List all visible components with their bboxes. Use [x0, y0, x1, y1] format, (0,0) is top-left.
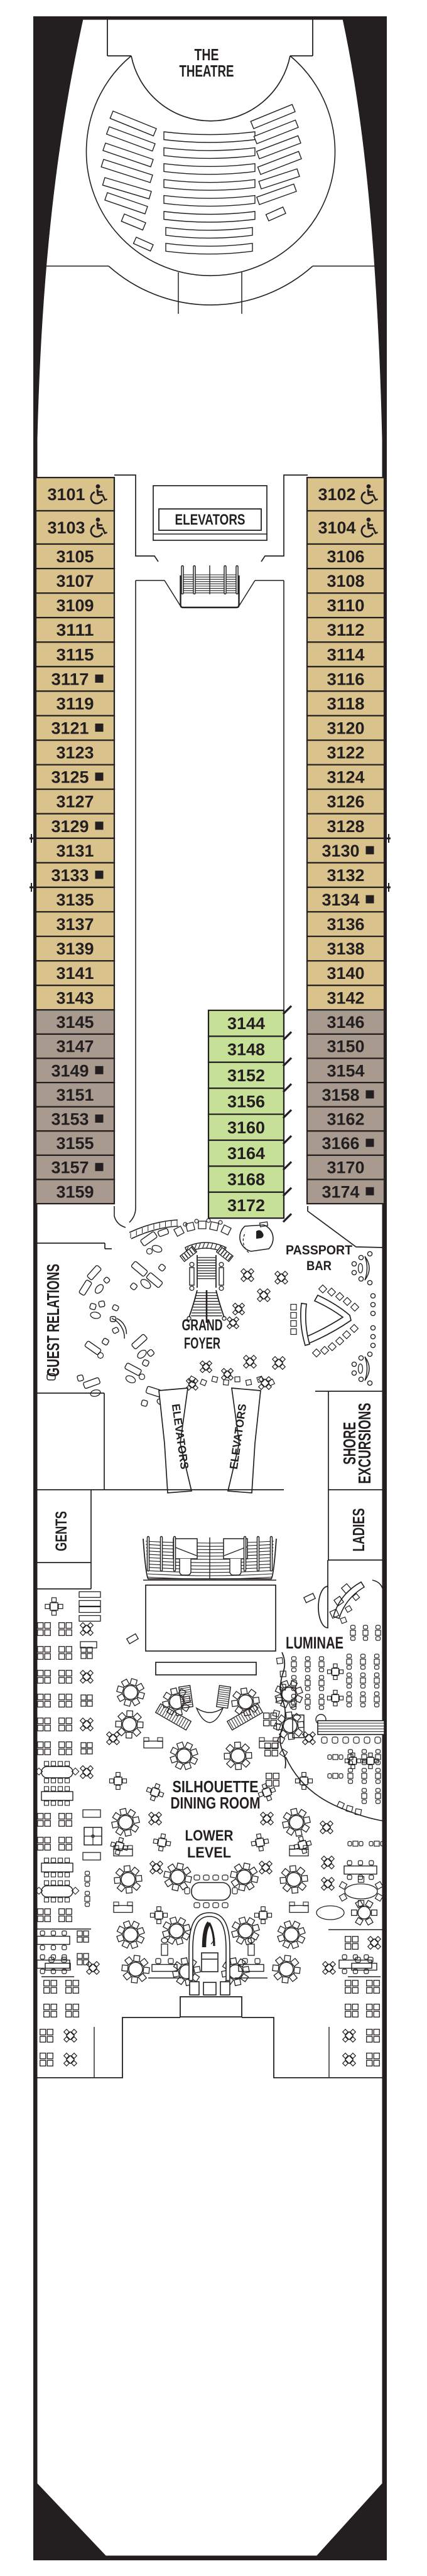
svg-text:3121: 3121 — [51, 719, 89, 738]
svg-text:EXCURSIONS: EXCURSIONS — [355, 1403, 374, 1484]
svg-text:3142: 3142 — [327, 988, 365, 1007]
svg-text:3146: 3146 — [327, 1013, 365, 1032]
svg-text:3118: 3118 — [327, 694, 365, 713]
svg-text:3168: 3168 — [227, 1170, 265, 1189]
svg-text:3124: 3124 — [327, 768, 365, 787]
svg-text:LOWER: LOWER — [185, 1827, 234, 1844]
svg-text:LEVEL: LEVEL — [187, 1844, 231, 1861]
svg-text:3107: 3107 — [57, 572, 94, 591]
svg-text:3137: 3137 — [57, 915, 94, 934]
svg-text:3102: 3102 — [318, 485, 356, 504]
svg-text:3135: 3135 — [57, 890, 94, 909]
svg-text:3136: 3136 — [327, 915, 365, 934]
svg-text:3120: 3120 — [327, 719, 365, 738]
svg-text:3162: 3162 — [327, 1110, 365, 1129]
svg-text:3155: 3155 — [57, 1134, 94, 1153]
svg-text:3128: 3128 — [327, 817, 365, 836]
svg-text:GRAND: GRAND — [182, 1317, 223, 1334]
svg-text:3134: 3134 — [322, 890, 360, 909]
svg-text:3149: 3149 — [51, 1061, 89, 1080]
svg-text:PASSPORT: PASSPORT — [286, 1243, 352, 1258]
svg-text:3129: 3129 — [51, 817, 89, 836]
svg-text:3106: 3106 — [327, 547, 365, 566]
svg-text:3112: 3112 — [327, 621, 365, 639]
svg-text:3147: 3147 — [57, 1037, 94, 1056]
svg-text:3109: 3109 — [57, 596, 94, 615]
svg-text:3101: 3101 — [48, 485, 85, 504]
svg-text:3148: 3148 — [227, 1040, 265, 1059]
svg-text:3132: 3132 — [327, 866, 365, 885]
svg-text:3172: 3172 — [227, 1196, 265, 1215]
svg-text:3133: 3133 — [51, 866, 89, 885]
svg-text:3119: 3119 — [57, 694, 94, 713]
svg-text:3140: 3140 — [327, 964, 365, 983]
svg-text:3123: 3123 — [57, 744, 94, 762]
svg-text:3115: 3115 — [57, 645, 94, 664]
svg-text:3130: 3130 — [322, 842, 360, 860]
svg-text:GENTS: GENTS — [53, 1511, 70, 1551]
svg-text:3158: 3158 — [322, 1086, 360, 1104]
svg-text:3108: 3108 — [327, 572, 365, 591]
svg-text:3153: 3153 — [51, 1110, 89, 1129]
svg-text:3141: 3141 — [57, 964, 94, 983]
svg-text:3160: 3160 — [227, 1118, 265, 1137]
svg-text:3145: 3145 — [57, 1013, 94, 1032]
svg-text:DINING ROOM: DINING ROOM — [171, 1793, 261, 1812]
svg-text:3111: 3111 — [57, 621, 94, 639]
svg-text:LUMINAE: LUMINAE — [286, 1633, 343, 1652]
svg-text:3105: 3105 — [57, 547, 94, 566]
svg-text:3144: 3144 — [227, 1014, 265, 1033]
svg-text:THEATRE: THEATRE — [180, 61, 234, 80]
svg-text:3150: 3150 — [327, 1037, 365, 1056]
svg-text:3126: 3126 — [327, 793, 365, 811]
svg-text:3114: 3114 — [327, 645, 365, 664]
svg-text:GUEST RELATIONS: GUEST RELATIONS — [43, 1264, 63, 1377]
svg-text:3154: 3154 — [327, 1061, 365, 1080]
svg-text:FOYER: FOYER — [184, 1335, 220, 1352]
svg-text:3152: 3152 — [227, 1066, 265, 1085]
svg-text:3166: 3166 — [322, 1134, 360, 1153]
svg-text:3156: 3156 — [227, 1092, 265, 1111]
svg-text:3159: 3159 — [57, 1182, 94, 1201]
svg-text:3174: 3174 — [322, 1182, 360, 1201]
svg-text:3157: 3157 — [51, 1158, 89, 1177]
svg-text:ELEVATORS: ELEVATORS — [175, 511, 246, 528]
svg-text:3131: 3131 — [57, 842, 94, 860]
svg-text:LADIES: LADIES — [349, 1509, 368, 1552]
svg-text:3110: 3110 — [327, 596, 365, 615]
svg-text:3104: 3104 — [318, 518, 356, 537]
svg-text:3103: 3103 — [48, 518, 85, 537]
svg-text:3117: 3117 — [51, 670, 89, 688]
svg-text:3170: 3170 — [327, 1158, 365, 1177]
svg-text:3122: 3122 — [327, 744, 365, 762]
svg-text:3151: 3151 — [57, 1086, 94, 1104]
svg-text:BAR: BAR — [306, 1259, 332, 1273]
svg-text:3125: 3125 — [51, 768, 89, 787]
svg-text:3138: 3138 — [327, 939, 365, 958]
svg-text:3164: 3164 — [227, 1144, 265, 1163]
svg-text:3127: 3127 — [57, 793, 94, 811]
svg-text:3116: 3116 — [327, 670, 365, 688]
svg-text:3143: 3143 — [57, 988, 94, 1007]
svg-text:3139: 3139 — [57, 939, 94, 958]
